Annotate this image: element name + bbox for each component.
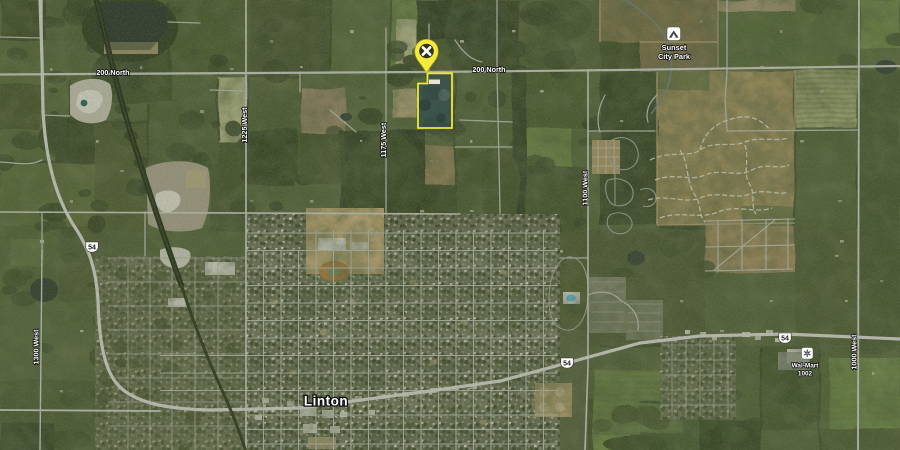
svg-text:200 North: 200 North bbox=[96, 68, 129, 77]
svg-text:1002: 1002 bbox=[798, 371, 813, 378]
svg-text:1225 West: 1225 West bbox=[240, 107, 249, 143]
svg-text:Linton: Linton bbox=[304, 394, 348, 409]
svg-text:City Park: City Park bbox=[658, 52, 691, 61]
svg-text:Wal-Mart: Wal-Mart bbox=[792, 363, 820, 370]
svg-text:Sunset: Sunset bbox=[662, 43, 687, 52]
svg-text:1175 West: 1175 West bbox=[379, 122, 388, 157]
svg-text:1000 West: 1000 West bbox=[850, 334, 859, 370]
svg-text:54: 54 bbox=[563, 361, 571, 368]
svg-text:200 North: 200 North bbox=[472, 65, 505, 74]
svg-text:54: 54 bbox=[781, 336, 789, 343]
svg-text:1300 West: 1300 West bbox=[32, 329, 41, 365]
svg-text:1100 West: 1100 West bbox=[581, 170, 590, 205]
svg-text:54: 54 bbox=[88, 245, 96, 252]
